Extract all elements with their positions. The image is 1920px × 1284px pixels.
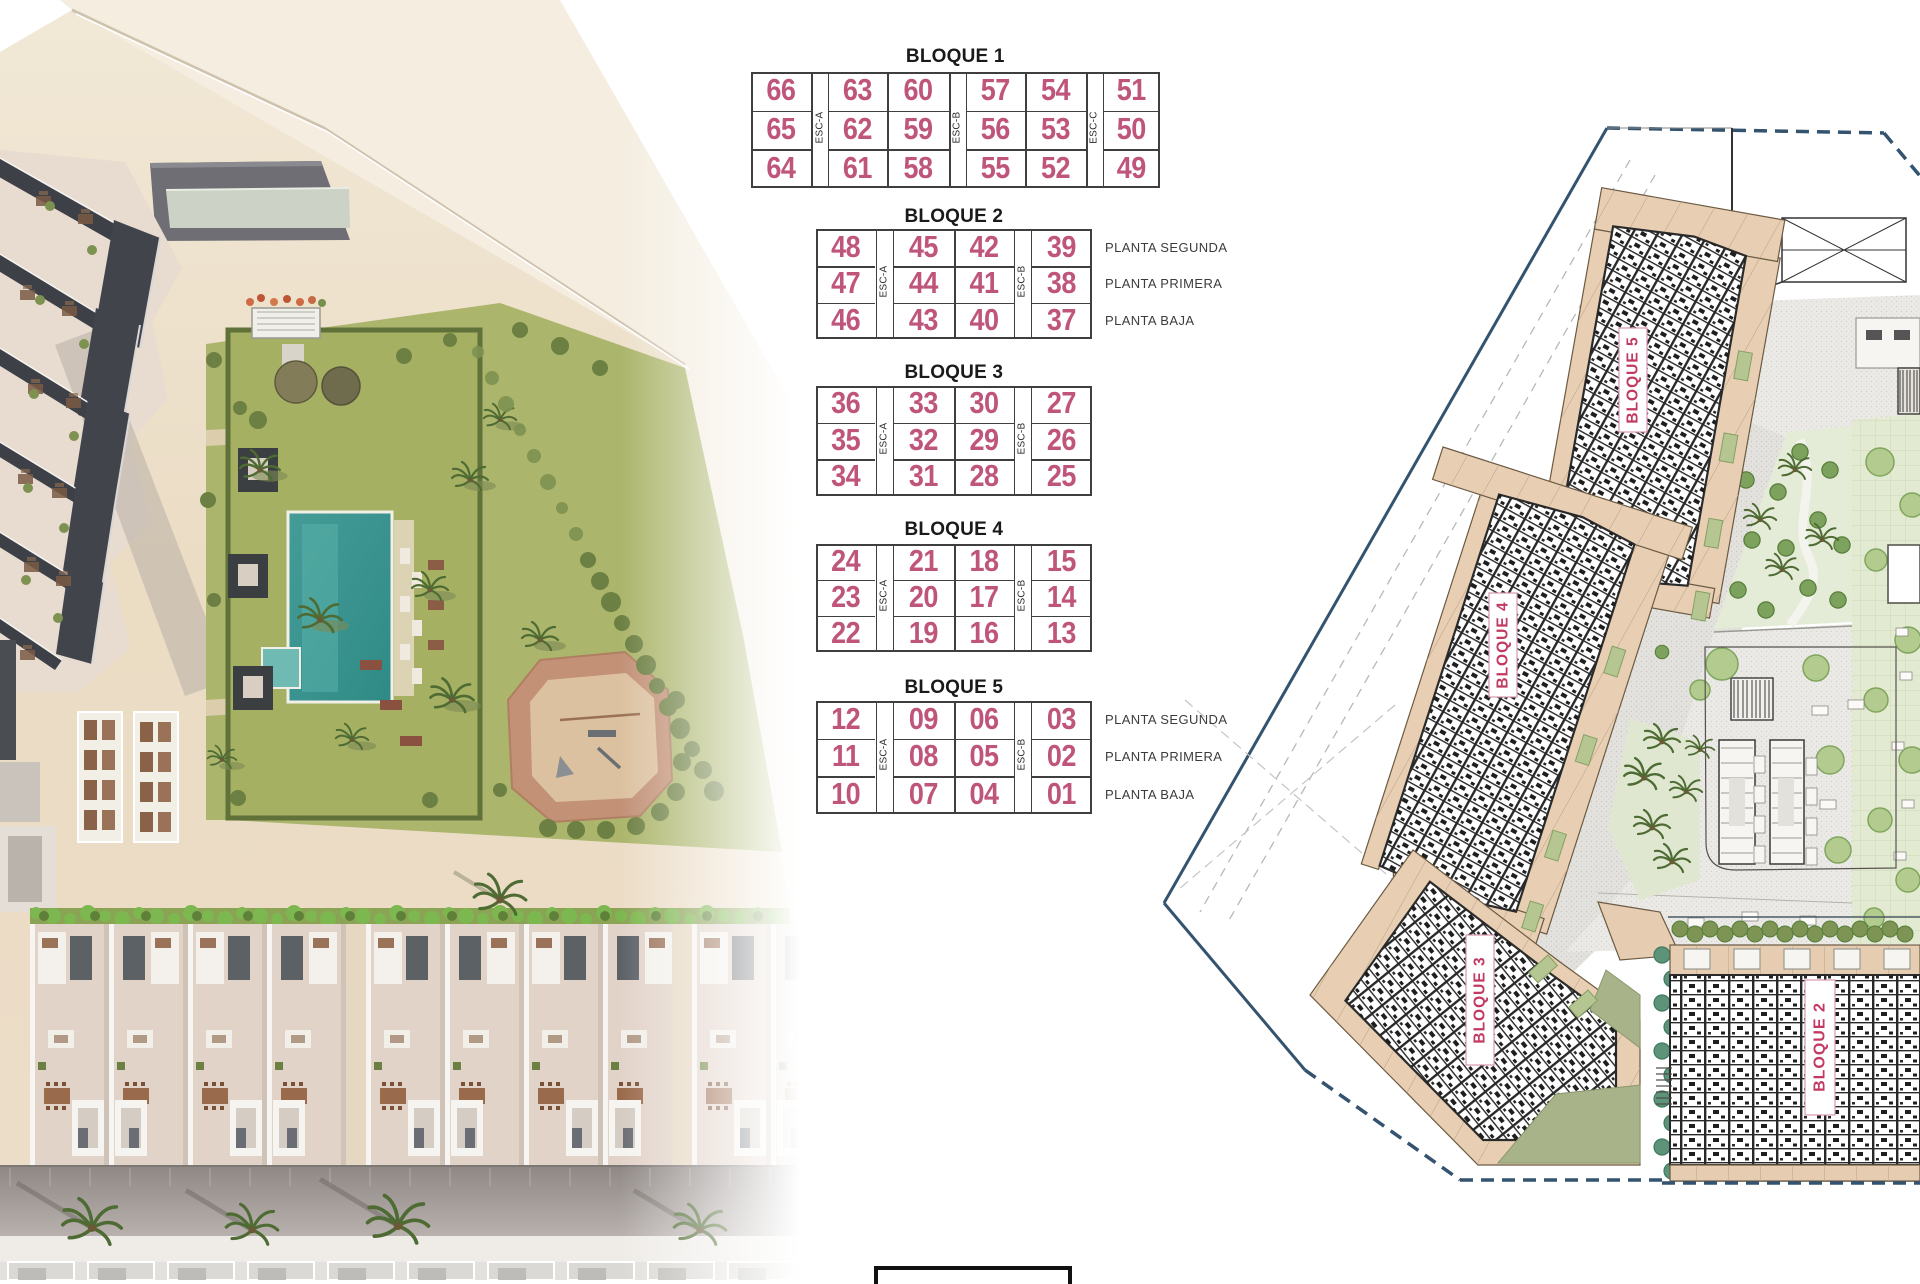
svg-text:BLOQUE 5: BLOQUE 5: [1625, 336, 1642, 423]
svg-text:BLOQUE 4: BLOQUE 4: [1495, 601, 1512, 688]
svg-text:BLOQUE 3: BLOQUE 3: [1472, 956, 1489, 1043]
svg-text:BLOQUE 2: BLOQUE 2: [1812, 1002, 1829, 1092]
